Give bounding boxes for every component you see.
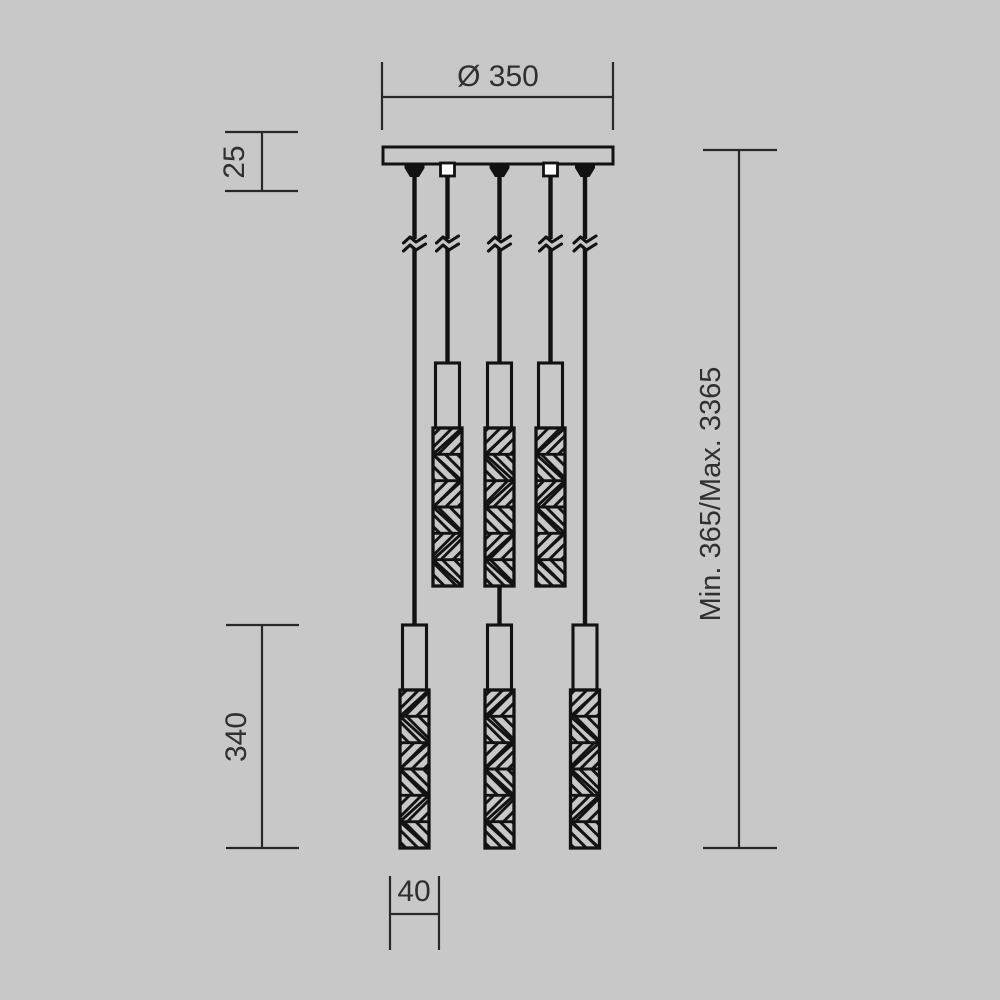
pendant-tube: [436, 363, 460, 428]
suspension-cable: [573, 163, 597, 625]
pendant-lamp-lower: [485, 625, 514, 848]
dim-canopy-height: 25: [218, 132, 298, 191]
dim-pendant-length-label: 340: [220, 712, 253, 762]
suspension-cable: [539, 163, 563, 363]
cable-grip-solid: [405, 163, 425, 177]
pendant-lamp-lower: [400, 625, 429, 848]
ceiling-canopy: [383, 147, 613, 164]
dim-canopy-diameter-label: Ø 350: [457, 60, 539, 93]
pendant-lamp-upper: [485, 363, 514, 586]
pendant-light-dimension-drawing: Ø 350 25 340 Min. 365/Max. 3365: [0, 0, 1000, 1000]
suspension-cable: [436, 163, 460, 363]
pendant-lamp-upper: [536, 363, 565, 586]
dim-pendant-diameter: 40: [390, 875, 439, 950]
pendant-tube: [488, 625, 512, 690]
dim-pendant-length: 340: [220, 625, 299, 848]
dim-canopy-diameter: Ø 350: [382, 60, 613, 130]
suspension-cable: [403, 163, 427, 625]
drawing-canvas: Ø 350 25 340 Min. 365/Max. 3365: [0, 0, 1000, 1000]
pendant-tube: [539, 363, 563, 428]
pendant-lamp-lower: [571, 625, 600, 848]
dim-pendant-diameter-label: 40: [397, 875, 430, 908]
cable-grip-solid: [490, 163, 510, 177]
pendant-tube: [403, 625, 427, 690]
dim-canopy-height-label: 25: [218, 145, 251, 178]
cable-grip-solid: [575, 163, 595, 177]
fixture-artwork: [383, 147, 613, 848]
dim-suspension-height-label: Min. 365/Max. 3365: [695, 367, 727, 622]
pendant-lamp-upper: [433, 363, 462, 586]
cable-grip-open: [544, 163, 558, 176]
dim-suspension-height: Min. 365/Max. 3365: [695, 150, 777, 848]
pendant-tube: [573, 625, 597, 690]
cable-grip-open: [441, 163, 455, 176]
pendant-tube: [488, 363, 512, 428]
